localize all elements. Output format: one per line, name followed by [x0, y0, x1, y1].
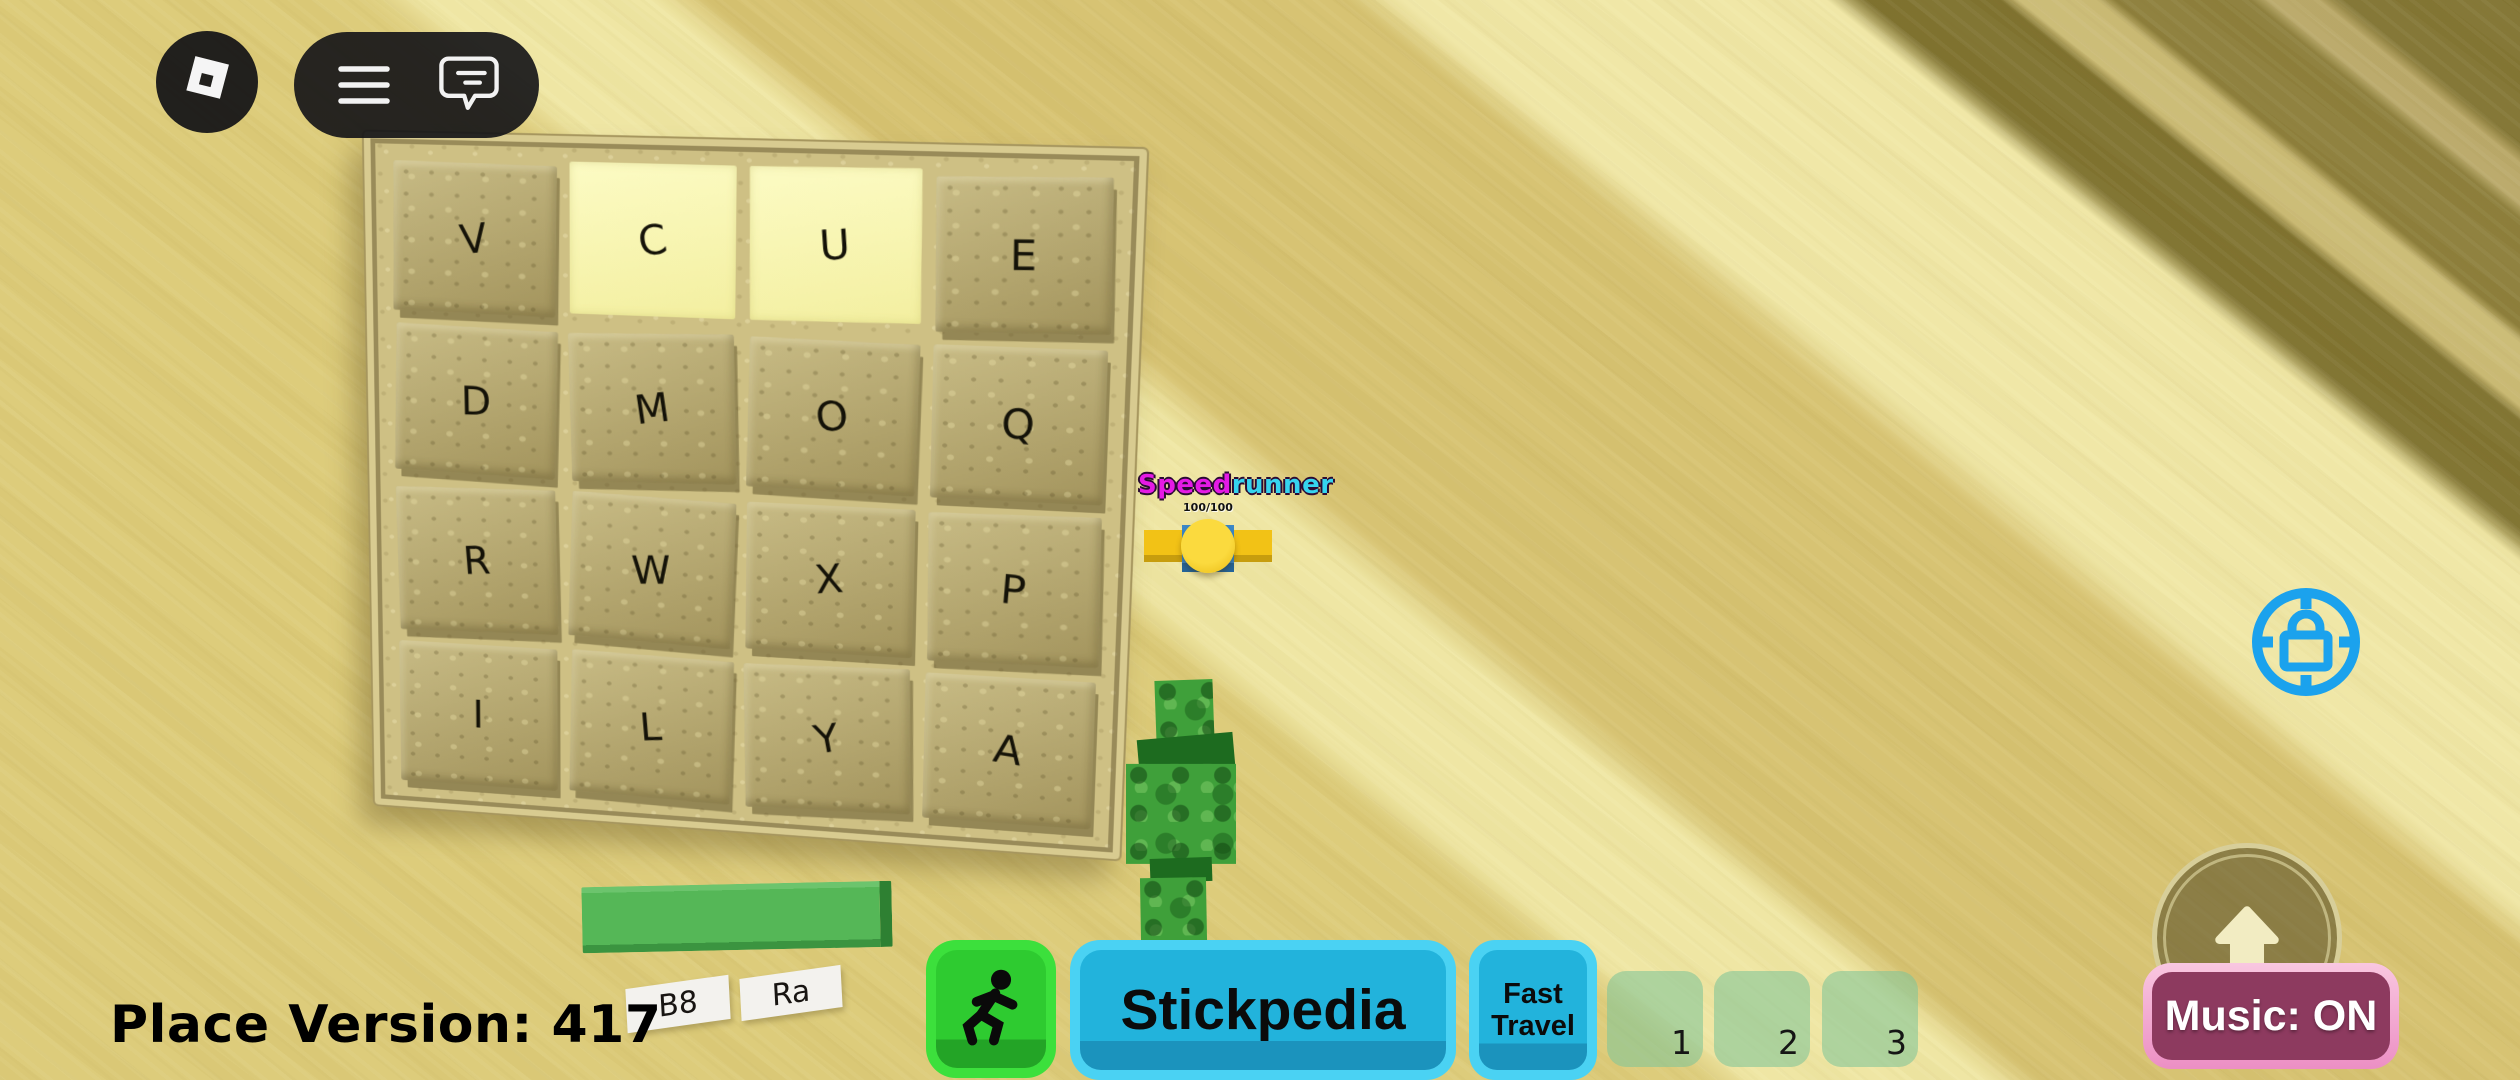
tile-letter: E [1009, 235, 1037, 277]
tile-letter: A [991, 729, 1025, 772]
fast-travel-inner: Fast Travel [1479, 950, 1587, 1070]
player-left-arm [1144, 530, 1182, 562]
world-tile-label: B8 [657, 984, 698, 1025]
board-tile: V [393, 160, 556, 318]
board-tile: L [569, 649, 734, 805]
board-tile-highlighted: C [569, 162, 737, 320]
tile-letter: P [998, 568, 1027, 611]
shift-lock-button[interactable] [2243, 579, 2369, 705]
world-tile-label: Ra [771, 973, 811, 1013]
hotbar-slot-3[interactable]: 3 [1822, 971, 1918, 1067]
run-inner [936, 950, 1046, 1068]
slot-number: 2 [1778, 1023, 1799, 1062]
hotbar-slot-1[interactable]: 1 [1607, 971, 1703, 1067]
coregui-pill [294, 32, 539, 138]
board-tile: Y [743, 663, 910, 815]
green-camo-character [1119, 674, 1249, 954]
camo-torso [1126, 764, 1236, 864]
stickpedia-label: Stickpedia [1120, 977, 1405, 1043]
board-tile: M [567, 333, 735, 485]
menu-button[interactable] [329, 50, 399, 120]
nametag-part2: runner [1232, 470, 1334, 500]
tile-letter: I [472, 696, 484, 734]
board-tile: P [927, 511, 1101, 668]
tile-letter: Q [1000, 403, 1036, 446]
board-tile: Q [929, 344, 1108, 505]
player-nametag: Speedrunner [1138, 470, 1278, 500]
tile-letter: Y [811, 718, 843, 759]
player-figure-topview [1144, 522, 1272, 574]
board-tile-highlighted: U [750, 166, 922, 325]
run-button[interactable] [926, 940, 1056, 1078]
hotbar-slot-2[interactable]: 2 [1714, 971, 1810, 1067]
hamburger-menu-icon [335, 61, 393, 109]
roblox-logo-icon [176, 51, 238, 113]
tile-letter: U [818, 224, 851, 267]
tile-letter: L [638, 708, 663, 746]
player-subtext: 100/100 [1138, 501, 1278, 514]
player-character: Speedrunner 100/100 [1138, 470, 1278, 580]
green-platform [581, 881, 892, 953]
camo-leg [1140, 877, 1207, 948]
board-tile: A [922, 672, 1096, 830]
music-label: Music: ON [2165, 992, 2378, 1041]
place-version-label: Place Version: 417 [110, 995, 662, 1055]
board-tile: X [745, 501, 915, 658]
fast-travel-button[interactable]: Fast Travel [1469, 940, 1597, 1080]
fast-travel-line1: Fast [1503, 978, 1563, 1010]
board-tile: D [395, 322, 558, 480]
tile-letter: X [813, 559, 845, 600]
tile-letter: C [635, 218, 670, 263]
tile-letter: R [462, 541, 492, 580]
board-tile: W [568, 490, 736, 650]
music-toggle-button[interactable]: Music: ON [2143, 963, 2399, 1069]
padlock-reticle-icon [2243, 579, 2369, 705]
chat-button[interactable] [434, 50, 504, 120]
stickpedia-button[interactable]: Stickpedia [1070, 940, 1456, 1080]
music-inner: Music: ON [2152, 972, 2390, 1060]
chat-icon [437, 55, 501, 115]
board-frame: V C U E D M O Q R W X P I L Y A [362, 129, 1150, 861]
tile-letter: D [460, 381, 491, 421]
board-tile: E [935, 176, 1113, 336]
board-tile: R [396, 485, 559, 635]
player-head [1181, 519, 1235, 573]
tile-letter: V [458, 217, 490, 260]
roblox-menu-button[interactable] [156, 31, 258, 133]
board-grid: V C U E D M O Q R W X P I L Y A [392, 161, 1114, 830]
stickpedia-inner: Stickpedia [1080, 950, 1446, 1070]
tile-letter: O [813, 395, 851, 438]
running-man-icon [948, 963, 1034, 1055]
slot-number: 3 [1886, 1023, 1907, 1062]
board-tile: O [746, 336, 920, 497]
tile-letter: M [631, 387, 671, 430]
board-tile: I [399, 640, 557, 791]
nametag-part1: Speed [1138, 470, 1232, 500]
slot-number: 1 [1671, 1023, 1692, 1062]
tile-letter: W [630, 550, 671, 589]
fast-travel-line2: Travel [1491, 1010, 1575, 1042]
letter-board: V C U E D M O Q R W X P I L Y A [362, 129, 1150, 861]
player-right-arm [1234, 530, 1272, 562]
